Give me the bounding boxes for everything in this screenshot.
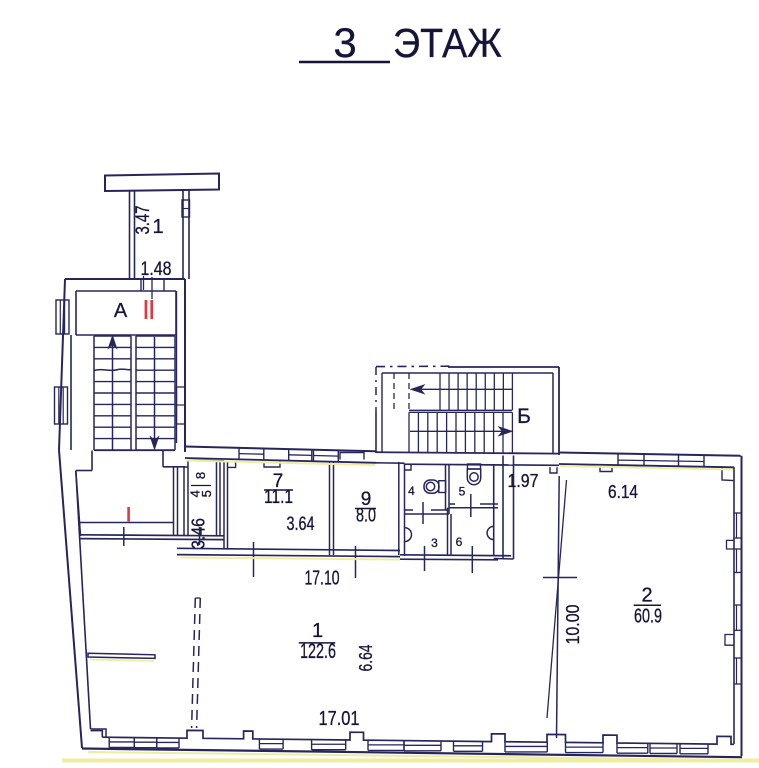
svg-text:3.47: 3.47 [133,206,154,235]
svg-text:1.48: 1.48 [141,259,172,280]
svg-text:6: 6 [456,535,463,549]
svg-text:A: A [114,300,128,322]
svg-text:122.6: 122.6 [300,640,336,663]
svg-text:5: 5 [459,485,466,499]
svg-text:Б: Б [517,405,531,428]
svg-text:5: 5 [199,490,214,497]
svg-text:6.14: 6.14 [608,482,638,502]
svg-text:17.01: 17.01 [319,708,360,730]
svg-text:1.97: 1.97 [508,471,539,491]
svg-text:11.1: 11.1 [264,487,293,508]
svg-text:3.46: 3.46 [188,518,208,549]
svg-text:4: 4 [408,484,415,498]
svg-text:3: 3 [333,19,356,66]
svg-text:1: 1 [152,216,163,238]
svg-text:1: 1 [312,620,323,642]
svg-text:60.9: 60.9 [634,606,662,628]
svg-text:17.10: 17.10 [305,568,340,590]
svg-text:3.64: 3.64 [287,514,315,535]
svg-text:8: 8 [193,472,208,479]
svg-text:10.00: 10.00 [563,605,583,645]
svg-text:6.64: 6.64 [356,645,376,672]
svg-text:2: 2 [641,585,652,607]
svg-text:ЭТАЖ: ЭТАЖ [393,20,502,66]
svg-text:8.0: 8.0 [356,506,376,527]
svg-text:3: 3 [431,536,438,550]
